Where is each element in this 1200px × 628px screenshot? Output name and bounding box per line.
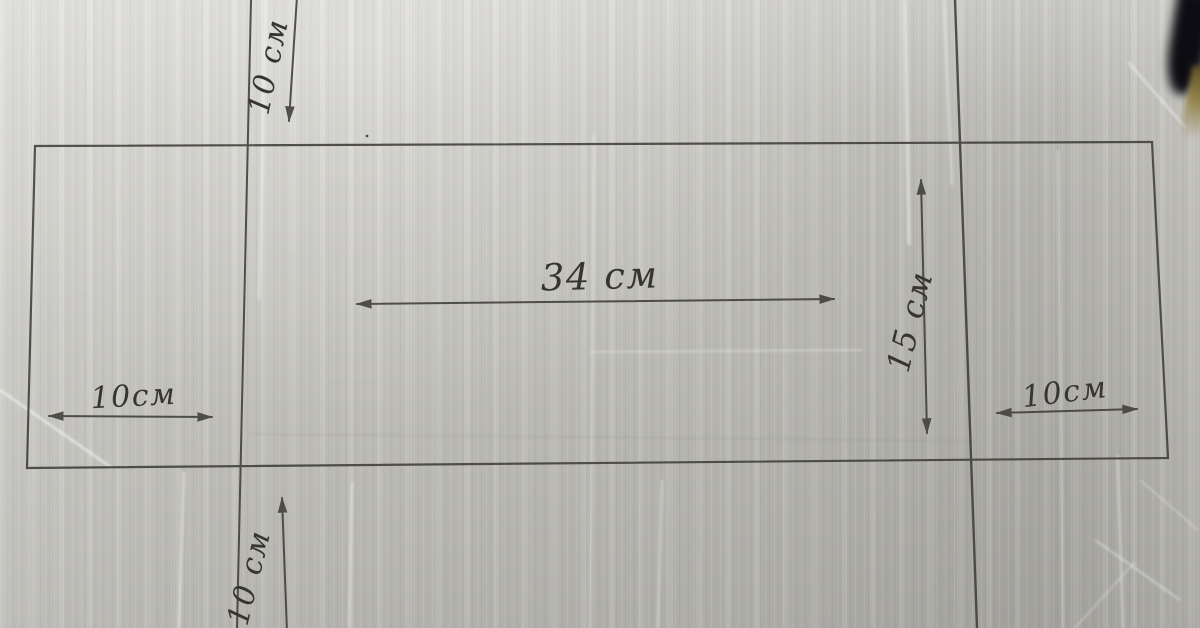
dim-label-height-right: 15 см bbox=[879, 267, 941, 376]
dim-arrow-bottom-fold bbox=[282, 498, 287, 628]
cardboard-creases bbox=[0, 0, 1198, 628]
dim-label-right-flap: 10см bbox=[1020, 370, 1109, 415]
dim-arrow-width-center bbox=[357, 299, 834, 304]
pen-dot bbox=[366, 135, 369, 138]
pattern-drawing: 10 см 34 см 15 см 10см 10см 10 см bbox=[0, 0, 1200, 628]
fold-line-right bbox=[955, 0, 977, 628]
pattern-outline bbox=[27, 142, 1168, 468]
cardboard-photo: 10 см 34 см 15 см 10см 10см 10 см bbox=[0, 0, 1200, 628]
dim-label-bottom-fold: 10 см bbox=[221, 526, 278, 628]
dim-arrow-top-fold bbox=[289, 0, 297, 121]
dim-label-width-center: 34 см bbox=[540, 253, 659, 299]
dim-arrow-left-flap bbox=[49, 416, 212, 417]
dim-label-left-flap: 10см bbox=[90, 377, 178, 416]
